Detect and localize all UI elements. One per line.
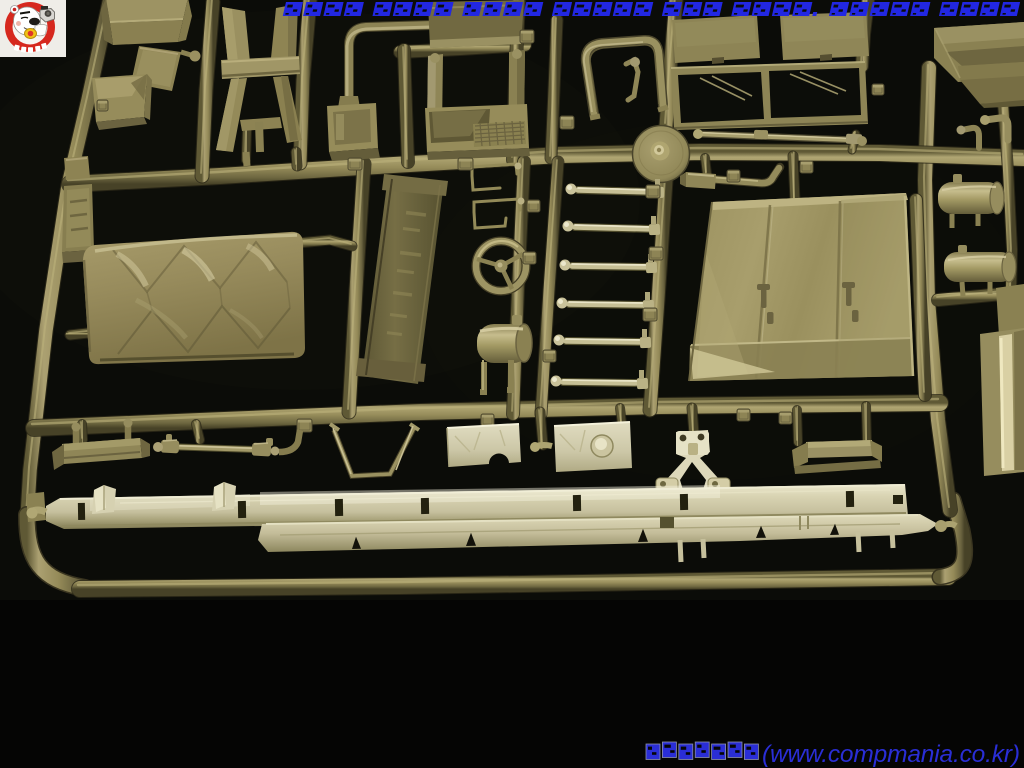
svg-text:(www.compmania.co.kr): (www.compmania.co.kr) [762, 741, 1020, 768]
